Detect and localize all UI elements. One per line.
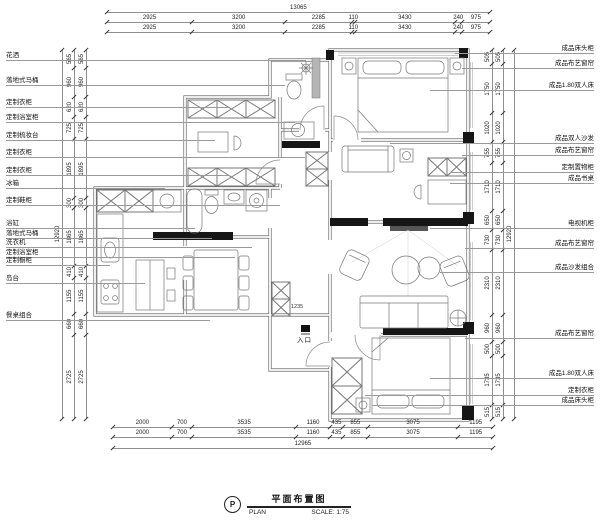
dimension-value: 855 [350,430,360,436]
dimension-value: 2725 [79,370,85,383]
label-curtain-1: 成品布艺窗帘 [462,60,594,69]
label-custom-wardrobe-1: 定制衣柜 [6,99,230,108]
label-custom-wardrobe-2: 定制衣柜 [6,149,305,158]
label-shower-head: 花洒 [6,52,306,61]
dimension-value: 240 [453,15,463,21]
label-nightstand-2: 成品床头柜 [372,397,594,406]
label-storage-cabinet: 定制置物柜 [450,164,594,173]
label-nightstand-1: 成品床头柜 [455,45,594,54]
dimension-value: 515 [485,407,491,417]
dimension-value: 435 [331,430,341,436]
label-washing-machine: 洗衣机 [6,239,252,248]
dimension-value: 2925 [143,25,156,31]
label-floor-toilet-2: 落地式马桶 [6,230,212,239]
dimension-value: 240 [453,25,463,31]
dimension-value: 1020 [485,121,491,134]
dimension-value: 1020 [496,121,502,134]
dimension-value: 3075 [406,420,419,426]
dimension-value: 1160 [307,430,320,436]
dimension-value: 3200 [232,15,245,21]
drawing-symbol: P [224,496,241,513]
dimension-value: 975 [471,25,481,31]
armchair-left [338,248,371,282]
title-block: P 平面布置图 PLAN SCALE: 1:75 [224,492,351,516]
dimension-value: 2000 [136,430,149,436]
dimension-value: 2000 [136,420,149,426]
dimension-value: 1160 [307,420,320,426]
drawing-title: 平面布置图 [247,492,351,505]
label-curtain-4: 成品布艺窗帘 [465,330,594,339]
label-dining-set: 餐桌组合 [6,312,210,321]
dimension-value: 1155 [79,290,85,303]
drawing-title-en: PLAN [249,509,266,516]
dimension-value: 500 [485,344,491,354]
label-kitchen-cabinet: 定制橱柜 [6,257,110,266]
tv-and-sight-lines [352,226,458,296]
dimension-value: 3535 [237,430,250,436]
dimension-value: 13065 [290,5,307,11]
label-floor-toilet-1: 落地式马桶 [6,77,285,86]
entrance-label: 入口 [297,334,312,344]
dimension-value: 700 [177,420,187,426]
coffee-tables [392,256,440,284]
dimension-value: 2925 [143,15,156,21]
dimension-value: 3075 [406,430,419,436]
title-rule [247,506,351,508]
drawing-scale: SCALE: 1:75 [311,509,349,516]
bathroom-2-fixtures [187,189,267,233]
dimension-value: 3535 [237,420,250,426]
dimension-value: 2285 [312,15,325,21]
label-fridge: 冰箱 [6,180,165,189]
dimension-value: 700 [177,430,187,436]
dimension-value: 3200 [232,25,245,31]
entrance-marker-icon [301,325,310,334]
label-curtain-3: 成品布艺窗帘 [465,240,594,249]
loveseat-sofa [342,146,413,172]
dimension-value: 1195 [469,430,482,436]
living-sofa [360,296,466,328]
label-double-bed-2: 成品1.80双人床 [430,370,594,379]
master-bed [342,58,464,132]
label-double-bed-1: 成品1.80双人床 [430,82,594,91]
dimension-value: 1195 [469,420,482,426]
label-custom-wardrobe-4: 定制衣柜 [365,387,594,396]
dimension-value: 500 [496,344,502,354]
label-sofa-set: 成品沙发组合 [440,264,594,273]
label-bathtub: 浴缸 [6,220,195,229]
dimension-value: 2310 [485,276,491,289]
label-bath-cabinet-1: 定制浴室柜 [6,114,295,123]
dimension-value: 975 [471,15,481,21]
dimension-value: 12965 [295,441,312,447]
label-desk: 成品书桌 [450,175,594,184]
dining-set [183,250,249,310]
dimension-value: 435 [331,420,341,426]
dimension-value: 1235 [291,304,303,310]
label-loveseat: 成品双人沙发 [390,135,594,144]
label-dressing-table: 定制梳妆台 [6,132,215,141]
label-custom-wardrobe-3: 定制衣柜 [6,167,230,176]
dimension-value: 2310 [496,276,502,289]
label-curtain-2: 成品布艺窗帘 [462,147,594,156]
dimension-value: 3430 [398,15,411,21]
hatched-partition [312,58,320,98]
label-tv-cabinet: 电视机柜 [430,220,594,229]
dimension-value: 3430 [398,25,411,31]
dimension-value: 855 [350,420,360,426]
label-shoe-cabinet: 定制鞋柜 [6,197,280,206]
dimension-value: 515 [496,407,502,417]
dimension-value: 2725 [67,370,73,383]
floor-plan-page: 13065 2925320022851103430240975 29253200… [0,0,600,521]
label-island-counter: 岛台 [6,275,145,284]
dimension-value: 1155 [67,290,73,303]
dimension-value: 2285 [312,25,325,31]
